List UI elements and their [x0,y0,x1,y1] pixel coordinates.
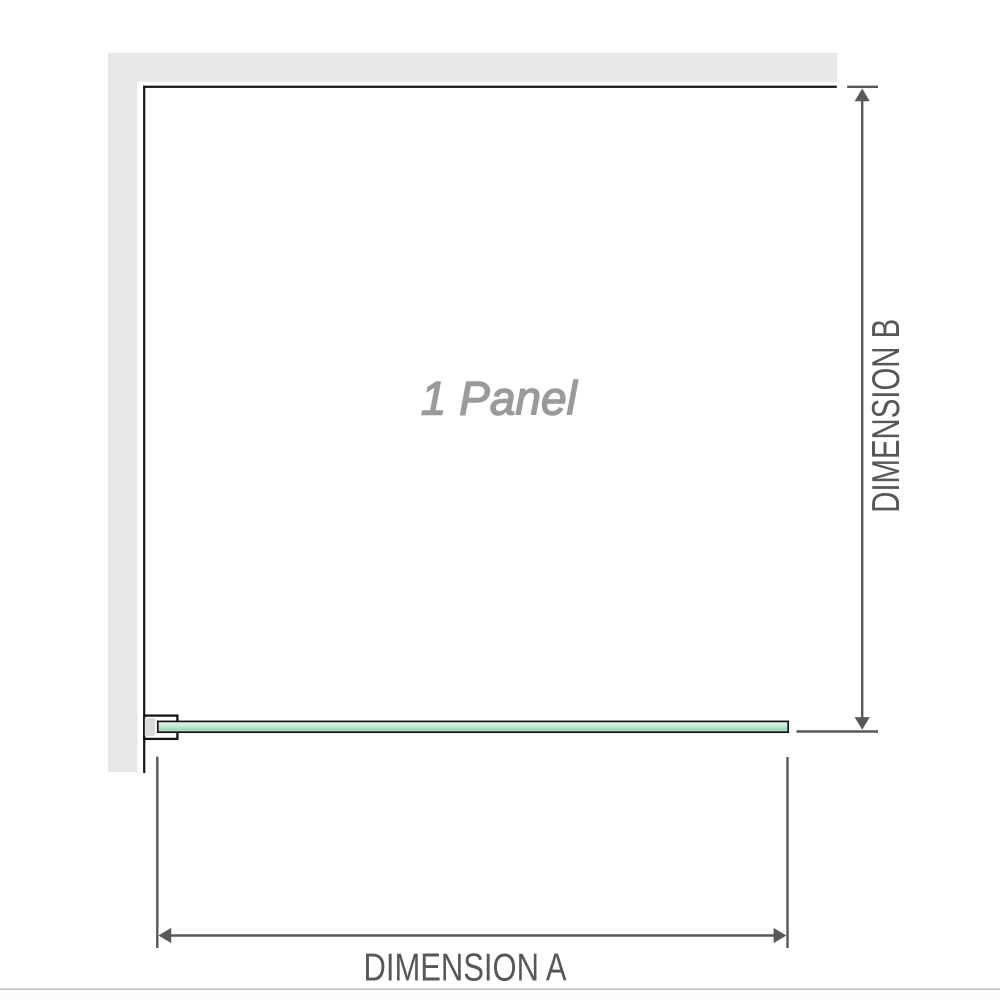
svg-text:DIMENSION B: DIMENSION B [865,319,908,513]
svg-text:1 Panel: 1 Panel [421,371,579,424]
svg-text:DIMENSION A: DIMENSION A [364,947,567,990]
